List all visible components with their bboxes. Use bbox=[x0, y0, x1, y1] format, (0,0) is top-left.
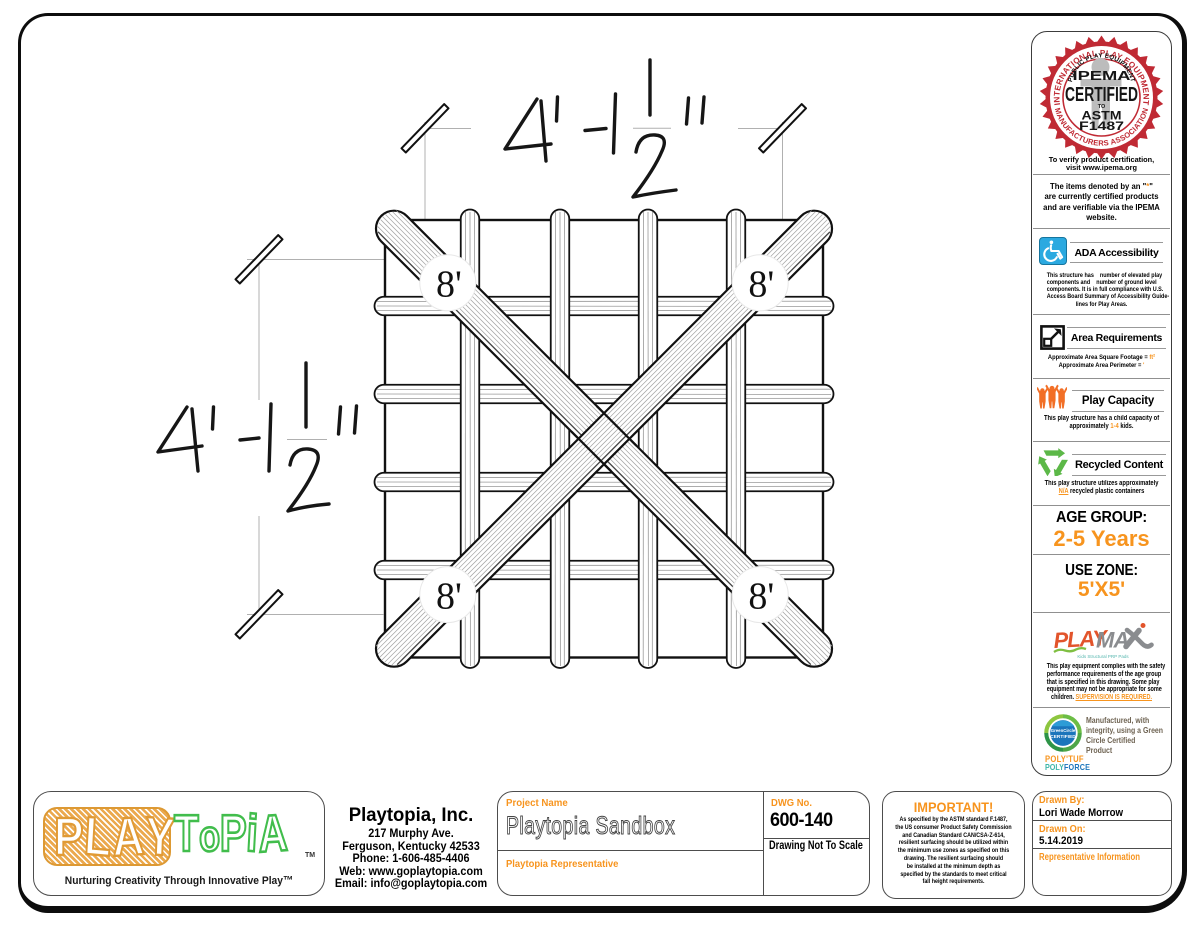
svg-text:CERTIFIED: CERTIFIED bbox=[1050, 734, 1076, 739]
svg-text:8': 8' bbox=[748, 264, 774, 306]
svg-text:CERTIFIED: CERTIFIED bbox=[1065, 84, 1138, 106]
svg-text:TO: TO bbox=[1098, 104, 1106, 110]
svg-text:Kids Structural PRP Pads: Kids Structural PRP Pads bbox=[1077, 654, 1129, 659]
svg-text:F1487: F1487 bbox=[1079, 121, 1124, 133]
svg-text:IPEMA: IPEMA bbox=[1073, 68, 1132, 83]
svg-text:8': 8' bbox=[748, 575, 774, 617]
svg-text:MA: MA bbox=[1096, 628, 1129, 653]
svg-text:8': 8' bbox=[436, 575, 462, 617]
svg-text:8': 8' bbox=[436, 264, 462, 306]
svg-text:GreenCircle: GreenCircle bbox=[1051, 728, 1076, 733]
